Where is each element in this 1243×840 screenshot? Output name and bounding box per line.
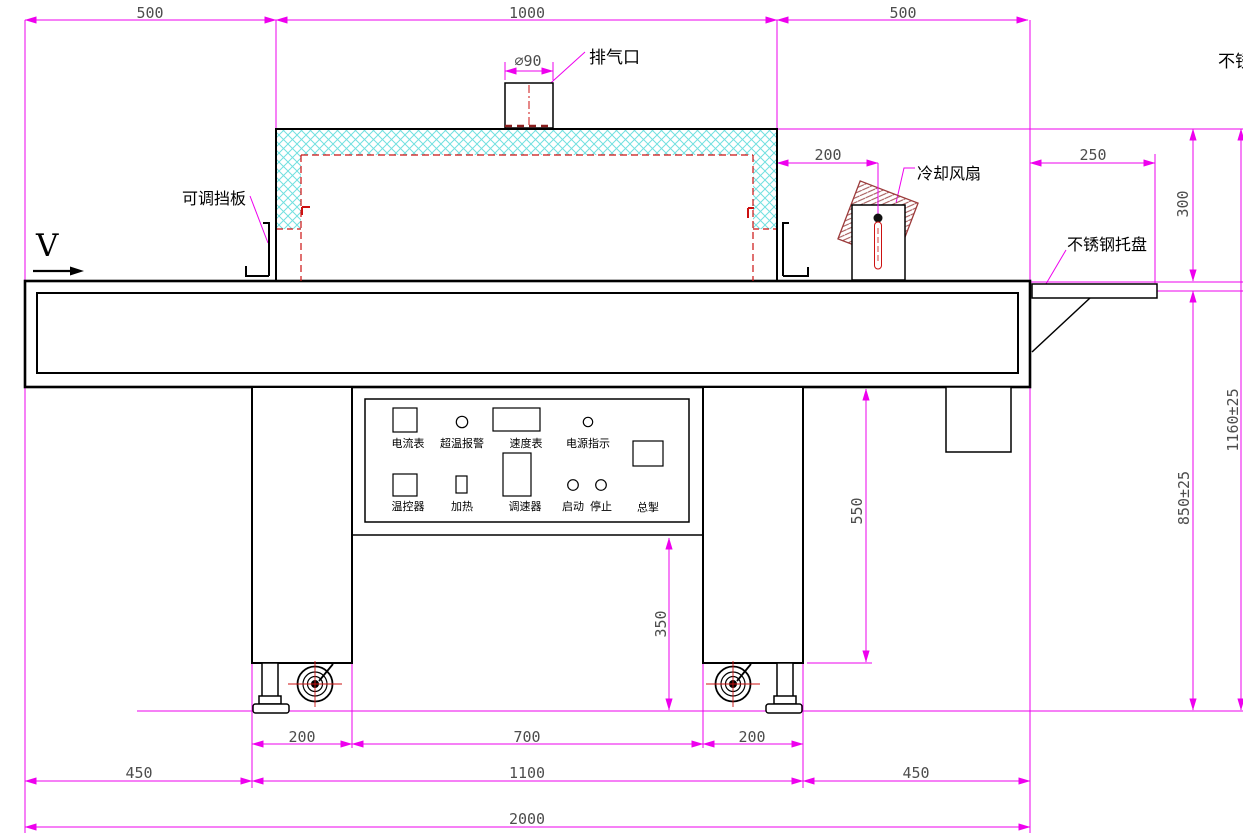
left-leg — [252, 387, 352, 663]
stop-button — [596, 480, 607, 491]
dim-outlet-height: 300 — [1174, 190, 1192, 217]
callout-top-right-clipped: 不锈钢网带 — [1218, 47, 1243, 72]
dim-left-overhang: 450 — [125, 764, 152, 782]
fan-hub — [874, 214, 883, 223]
right-foot — [766, 663, 802, 713]
main-switch — [633, 441, 663, 466]
label-speed-regulator: 调速器 — [509, 498, 542, 514]
tray-support — [1032, 298, 1090, 352]
dim-table-to-floor: 550 — [848, 497, 866, 524]
label-speed-meter: 速度表 — [510, 435, 543, 451]
left-caster-crosshair — [288, 661, 342, 707]
belt-direction-label: V — [36, 228, 58, 264]
dim-tray-length: 250 — [1079, 146, 1106, 164]
dim-total-length: 2000 — [509, 810, 545, 828]
dim-total-height: 1160±25 — [1224, 388, 1242, 451]
speed-meter — [493, 408, 540, 431]
machine-geometry — [25, 83, 1157, 713]
callout-stainless-tray: 不锈钢托盘 — [1067, 231, 1147, 255]
dim-panel-to-floor: 350 — [652, 610, 670, 637]
dim-top-center: 1000 — [509, 4, 545, 22]
dim-exhaust-diameter: ∅90 — [514, 52, 541, 70]
baffle-left — [246, 223, 269, 276]
label-power-indicator: 电源指示 — [566, 435, 610, 451]
start-button — [568, 480, 579, 491]
tunnel-oven-engineering-drawing: 500 1000 500 ∅90 200 250 300 850±25 1160… — [0, 0, 1243, 840]
belt-direction-arrow — [33, 267, 84, 276]
ammeter-meter — [393, 408, 417, 432]
oven-insulation — [277, 130, 776, 229]
label-heating: 加热 — [451, 498, 473, 514]
drawing-geometry — [0, 0, 1243, 840]
heating-switch — [456, 476, 467, 493]
dim-leg-span: 1100 — [509, 764, 545, 782]
cooling-fan — [838, 163, 918, 280]
label-stop: 停止 — [590, 498, 612, 514]
right-caster-crosshair — [706, 661, 760, 707]
overtemp-alarm-lamp — [456, 416, 467, 427]
left-foot — [253, 663, 289, 713]
temp-controller — [393, 474, 417, 496]
label-main-switch: 总掣 — [637, 499, 659, 515]
dim-right-overhang: 450 — [902, 764, 929, 782]
callout-exhaust-port: 排气口 — [589, 43, 640, 68]
dim-fan-offset: 200 — [814, 146, 841, 164]
dim-leg-gap: 700 — [513, 728, 540, 746]
label-start: 启动 — [562, 498, 584, 514]
baffle-right — [783, 223, 808, 276]
dim-right-leg-width: 200 — [738, 728, 765, 746]
motor-box — [946, 387, 1011, 452]
dim-top-left: 500 — [136, 4, 163, 22]
conveyor-belt-opening — [37, 293, 1018, 373]
label-temp-controller: 温控器 — [392, 498, 425, 514]
dim-work-height: 850±25 — [1175, 471, 1193, 525]
power-indicator-lamp — [583, 417, 592, 426]
callout-adjustable-baffle: 可调挡板 — [182, 185, 246, 209]
speed-regulator-knob — [503, 453, 531, 496]
dim-top-right: 500 — [889, 4, 916, 22]
label-overtemp-alarm: 超温报警 — [440, 435, 484, 451]
label-ammeter: 电流表 — [392, 435, 425, 451]
dim-left-leg-width: 200 — [288, 728, 315, 746]
right-leg — [703, 387, 803, 663]
tray — [1032, 284, 1157, 298]
callout-cooling-fan: 冷却风扇 — [917, 160, 981, 184]
